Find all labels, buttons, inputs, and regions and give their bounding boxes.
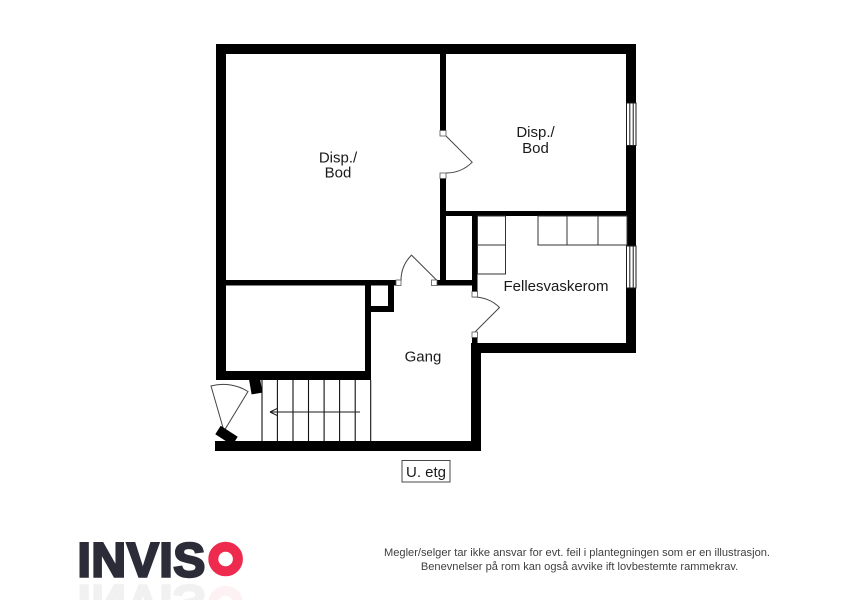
- svg-text:U. etg: U. etg: [406, 464, 446, 481]
- svg-text:Gang: Gang: [405, 349, 442, 366]
- svg-text:Benevnelser på rom kan også av: Benevnelser på rom kan også avvike ift l…: [421, 561, 738, 573]
- svg-text:Disp./: Disp./: [516, 124, 555, 141]
- svg-text:INVIS: INVIS: [78, 575, 206, 600]
- svg-text:Bod: Bod: [522, 140, 549, 157]
- svg-text:Bod: Bod: [325, 165, 352, 182]
- svg-text:Fellesvaskerom: Fellesvaskerom: [503, 278, 608, 295]
- svg-text:Megler/selger tar ikke ansvar: Megler/selger tar ikke ansvar for evt. f…: [384, 547, 770, 559]
